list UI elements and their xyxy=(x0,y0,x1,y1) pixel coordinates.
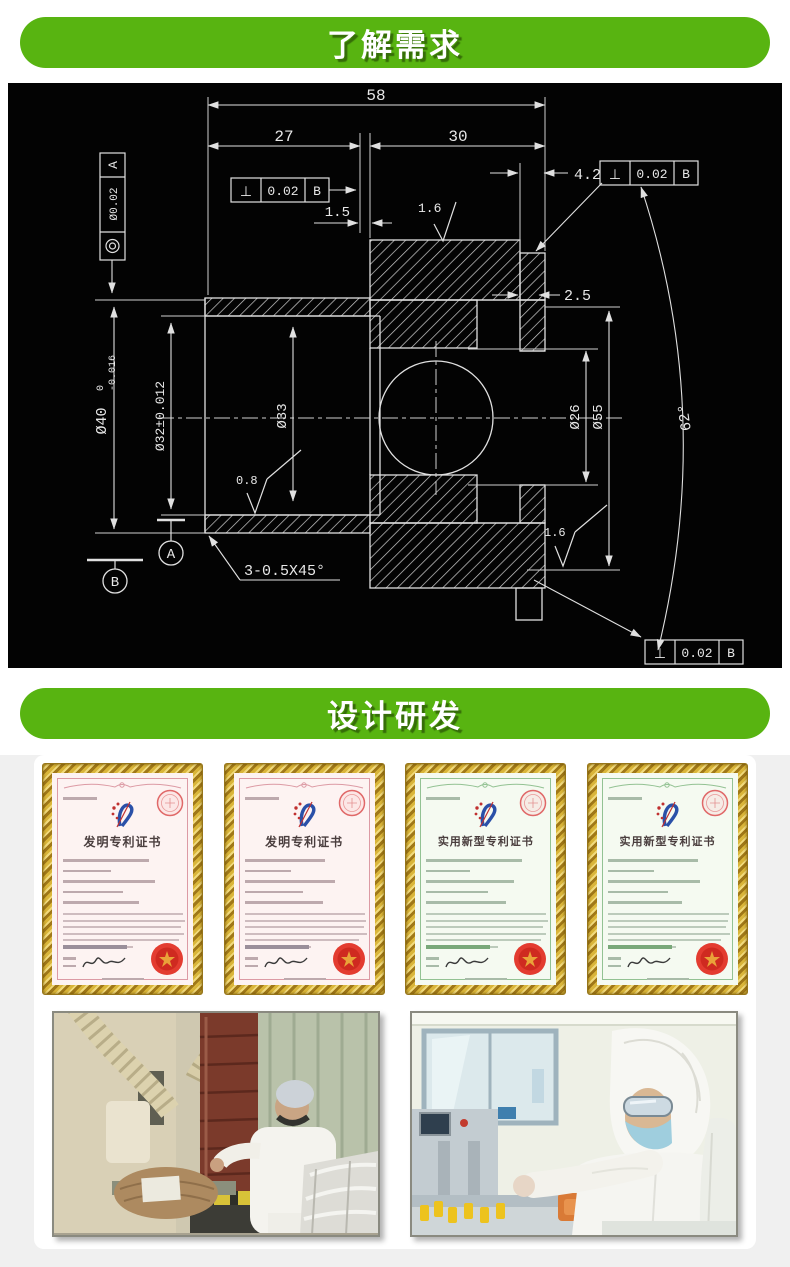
national-emblem-seal-icon xyxy=(694,941,730,977)
gdt-frame-concentricity: A Ø0.02 xyxy=(100,153,125,293)
certificate-highlight-line xyxy=(245,945,309,949)
svg-text:Ø0.02: Ø0.02 xyxy=(109,187,121,220)
dim-dia40: Ø40 0 -0.016 xyxy=(94,355,119,435)
cnipa-logo-icon xyxy=(291,799,319,829)
banner-title: 了解需求 xyxy=(327,20,463,65)
dim-30: 30 xyxy=(448,128,467,146)
svg-text:0.02: 0.02 xyxy=(636,167,667,182)
section-banner-understand: 了解需求 xyxy=(20,17,770,68)
cnipa-logo-icon xyxy=(654,799,682,829)
dim-dia55: Ø55 xyxy=(591,404,607,429)
certificate-number-line xyxy=(245,797,279,800)
section-banner-design: 设计研发 xyxy=(20,688,770,739)
certificate-footer-line xyxy=(102,978,144,980)
roughness-bottom-value: 1.6 xyxy=(544,526,566,540)
round-seal-icon xyxy=(701,789,729,817)
certificate-title: 发明专利证书 xyxy=(234,833,375,850)
round-seal-icon xyxy=(519,789,547,817)
certificate-fields xyxy=(608,859,700,912)
dim-dia26: Ø26 xyxy=(568,404,584,429)
certificate-footer-line xyxy=(647,978,689,980)
certificate-highlight-line xyxy=(63,945,127,949)
dim-27: 27 xyxy=(274,128,293,146)
national-emblem-seal-icon xyxy=(512,941,548,977)
dim-1-5: 1.5 xyxy=(325,205,350,221)
svg-text:0.02: 0.02 xyxy=(681,646,712,661)
gdt-frame-top-left: ⊥ 0.02 B xyxy=(231,178,356,202)
svg-text:B: B xyxy=(313,184,321,199)
datum-b: B xyxy=(87,560,143,593)
svg-text:A: A xyxy=(106,161,121,169)
svg-text:B: B xyxy=(111,575,119,591)
design-section: 发明专利证书 xyxy=(0,755,790,1267)
certificate-fields xyxy=(426,859,522,912)
national-emblem-seal-icon xyxy=(149,941,185,977)
perpendicularity-icon: ⊥ xyxy=(240,185,252,201)
patent-certificate-3: 实用新型专利证书 xyxy=(405,763,566,995)
svg-text:-0.016: -0.016 xyxy=(108,355,119,391)
svg-text:0.02: 0.02 xyxy=(267,184,298,199)
svg-text:B: B xyxy=(682,167,690,182)
patent-certificate-2: 发明专利证书 xyxy=(224,763,385,995)
signer-labels xyxy=(608,957,621,972)
product-detail-page: 了解需求 xyxy=(0,0,790,1267)
certificate-title: 实用新型专利证书 xyxy=(597,833,738,849)
svg-text:B: B xyxy=(727,646,735,661)
round-seal-icon xyxy=(156,789,184,817)
signature xyxy=(262,953,310,973)
part-section-hatched xyxy=(205,240,545,588)
photo-cleanroom-worker xyxy=(410,1011,738,1237)
certificate-highlight-line xyxy=(608,945,672,949)
factory-photos-row xyxy=(38,1011,752,1237)
signature xyxy=(443,953,491,973)
gdt-frame-top-right: ⊥ 0.02 B xyxy=(536,161,698,251)
certificate-fields xyxy=(63,859,155,912)
banner-title: 设计研发 xyxy=(327,691,463,736)
gdt-frame-bottom: ⊥ 0.02 B xyxy=(534,580,743,664)
photo-factory-worker xyxy=(52,1011,380,1237)
certificate-title: 实用新型专利证书 xyxy=(415,833,556,849)
bearing-section-drawing: 58 27 30 4.2 1.5 2.5 Ø40 0 -0.016 Ø32±0.… xyxy=(8,83,782,668)
national-emblem-seal-icon xyxy=(331,941,367,977)
signer-labels xyxy=(245,957,258,972)
certificate-number-line xyxy=(426,797,460,800)
signer-labels xyxy=(426,957,439,972)
certificate-footer-line xyxy=(465,978,507,980)
signature xyxy=(80,953,128,973)
certificate-title: 发明专利证书 xyxy=(52,833,193,850)
dim-2-5: 2.5 xyxy=(564,288,591,305)
signature xyxy=(625,953,673,973)
perpendicularity-icon: ⊥ xyxy=(609,168,621,184)
dim-dia33: Ø33 xyxy=(275,403,291,428)
dim-62deg: 62° xyxy=(675,403,696,432)
patent-certificate-1: 发明专利证书 xyxy=(42,763,203,995)
certificate-paper: 实用新型专利证书 xyxy=(415,773,556,985)
dim-dia32: Ø32±0.012 xyxy=(153,381,168,451)
engineering-drawing: 58 27 30 4.2 1.5 2.5 Ø40 0 -0.016 Ø32±0.… xyxy=(8,83,782,668)
patent-certificate-4: 实用新型专利证书 xyxy=(587,763,748,995)
svg-text:3-0.5X45°: 3-0.5X45° xyxy=(244,563,325,580)
svg-text:0: 0 xyxy=(96,385,107,391)
patent-certificates-row: 发明专利证书 xyxy=(38,763,752,995)
certificate-number-line xyxy=(608,797,642,800)
certificate-fields xyxy=(245,859,335,912)
roughness-top-value: 1.6 xyxy=(418,201,441,216)
datum-a: A xyxy=(157,520,185,565)
signer-labels xyxy=(63,957,76,972)
certificate-highlight-line xyxy=(426,945,490,949)
concentricity-icon xyxy=(106,240,119,253)
centerlines xyxy=(158,341,626,495)
svg-text:Ø40: Ø40 xyxy=(94,407,111,434)
svg-text:A: A xyxy=(167,547,176,563)
dim-58: 58 xyxy=(366,87,385,105)
round-seal-icon xyxy=(338,789,366,817)
content-card: 发明专利证书 xyxy=(34,755,756,1249)
perpendicularity-icon: ⊥ xyxy=(654,647,666,663)
certificate-paper: 发明专利证书 xyxy=(234,773,375,985)
certificate-footer-line xyxy=(284,978,326,980)
chamfer-note: 3-0.5X45° xyxy=(209,536,340,580)
cnipa-logo-icon xyxy=(472,799,500,829)
cnipa-logo-icon xyxy=(109,799,137,829)
certificate-number-line xyxy=(63,797,97,800)
dim-4-2: 4.2 xyxy=(574,167,601,184)
certificate-paper: 发明专利证书 xyxy=(52,773,193,985)
certificate-paper: 实用新型专利证书 xyxy=(597,773,738,985)
roughness-bore-value: 0.8 xyxy=(236,474,258,488)
